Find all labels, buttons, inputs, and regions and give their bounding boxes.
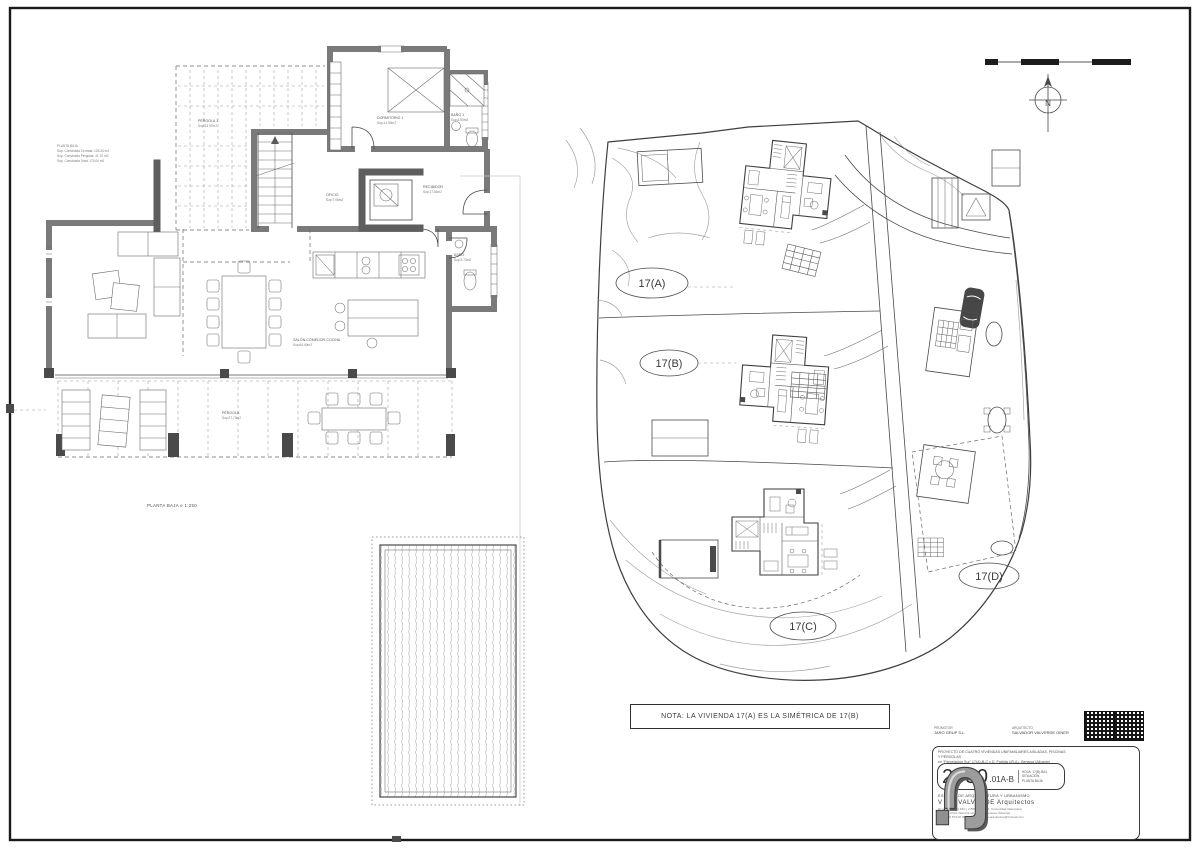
summary-line-1: PLANTA BAJA [57,144,79,148]
parking-pad-17a [782,244,821,276]
room-label-dormitorio1: DORMITORIO 1 [377,116,403,120]
north-letter: N [1045,99,1051,108]
promoter-name: JARO GRUP S.L. [934,730,966,735]
room-area-bano1: Sup:4.50m2 [451,118,468,122]
staircase [256,133,294,228]
car [959,287,986,330]
drawing-sheet: PÉRGOLA 1 Sup:13.97m2 DORMITORIO 1 Sup:1… [0,0,1200,848]
architect-block: ARQUITECTO SALVADOR VALVERDE GINER [1012,726,1082,735]
scale-bar [985,59,1131,65]
sheet-info: HOJA: 17(B)-BA1 SITUACIÓN PLANTA BAJA [1018,770,1047,783]
store-room [362,172,420,228]
plot-label-17a: 17(A) [639,278,666,290]
outdoor-dining-set [308,393,400,444]
room-area-salon: Sup:64.40m2 [293,343,312,347]
sun-loungers [62,390,166,450]
summary-line-4: Sup. Construida Total: 170.04 m2 [57,159,104,163]
title-block: PROMOTOR JARO GRUP S.L. ARQUITECTO SALVA… [928,708,1144,842]
title-block-main: PROYECTO DE CUATRO VIVIENDAS UNIFAMILIAR… [932,746,1140,840]
room-label-aseo: ASEO [454,253,464,257]
dining-set [207,261,281,363]
qr-code-1 [1085,712,1113,740]
room-label-recibidor: RECIBIDOR [423,185,443,189]
promoter-block: PROMOTOR JARO GRUP S.L. [934,726,966,735]
note-text: NOTA: LA VIVIENDA 17(A) ES LA SIMÉTRICA … [661,713,859,720]
plot-boundary [597,121,1031,680]
house-17a [738,138,835,251]
plot-label-17d: 17(D) [975,571,1003,583]
note-box: NOTA: LA VIVIENDA 17(A) ES LA SIMÉTRICA … [630,704,890,729]
swimming-pool [372,537,524,805]
plot-label-17b: 17(B) [656,358,683,370]
floor-plan-caption: PLANTA BAJA e 1:250 [147,503,197,508]
room-area-pergola2: Sup:27.73m2 [222,416,241,420]
site-plan: 17(A) 17(B) 17(C) 17(D) [566,121,1031,680]
room-label-oficio: OFICIO [326,193,339,197]
qr-code-2 [1115,712,1143,740]
sheet-planta: PLANTA BAJA [1022,779,1047,783]
room-label-pergola2: PÉRGOLA [222,410,240,415]
room-label-pergola1: PÉRGOLA 1 [198,118,218,123]
room-label-salon: SALÓN-COMEDOR-COCINA [293,337,341,342]
plot-17d-content [912,150,1020,572]
terrace [56,381,455,457]
plot-label-17c: 17(C) [789,621,817,633]
room-area-aseo: Sup:3.73m2 [454,258,471,262]
logo-monogram [944,767,985,829]
bedroom-furniture [330,62,444,150]
kitchen [313,252,425,348]
sofa-group [88,232,180,338]
summary-line-2: Sup. Construida Cerrada: 128.34 m2 [57,149,109,153]
contour-lines [566,128,1024,672]
frame-tick-left [6,404,14,413]
room-area-recibidor: Sup:17.84m2 [423,190,442,194]
room-area-pergola1: Sup:13.97m2 [198,124,217,128]
bathroom-fixtures [450,74,484,147]
plot-divisions [599,126,1029,652]
room-area-oficio: Sup:7.06m2 [326,198,343,202]
north-arrow: N [1029,74,1067,132]
summary-line-3: Sup. Construida Pérgolas: 41.70 m2 [57,154,109,158]
parking-pad-17b [790,372,826,399]
frame-tick-bottom [392,836,401,842]
architects-logo [933,755,997,835]
south-facade [44,368,456,378]
architect-name: SALVADOR VALVERDE GINER [1012,730,1082,735]
house-17c [732,489,837,575]
room-area-dormitorio1: Sup:14.50m2 [377,121,396,125]
logo-foot [936,810,948,824]
room-label-bano1: BAÑO 1 [451,112,464,117]
pergola-1-grid [176,66,325,230]
floor-plan: PÉRGOLA 1 Sup:13.97m2 DORMITORIO 1 Sup:1… [14,46,524,806]
